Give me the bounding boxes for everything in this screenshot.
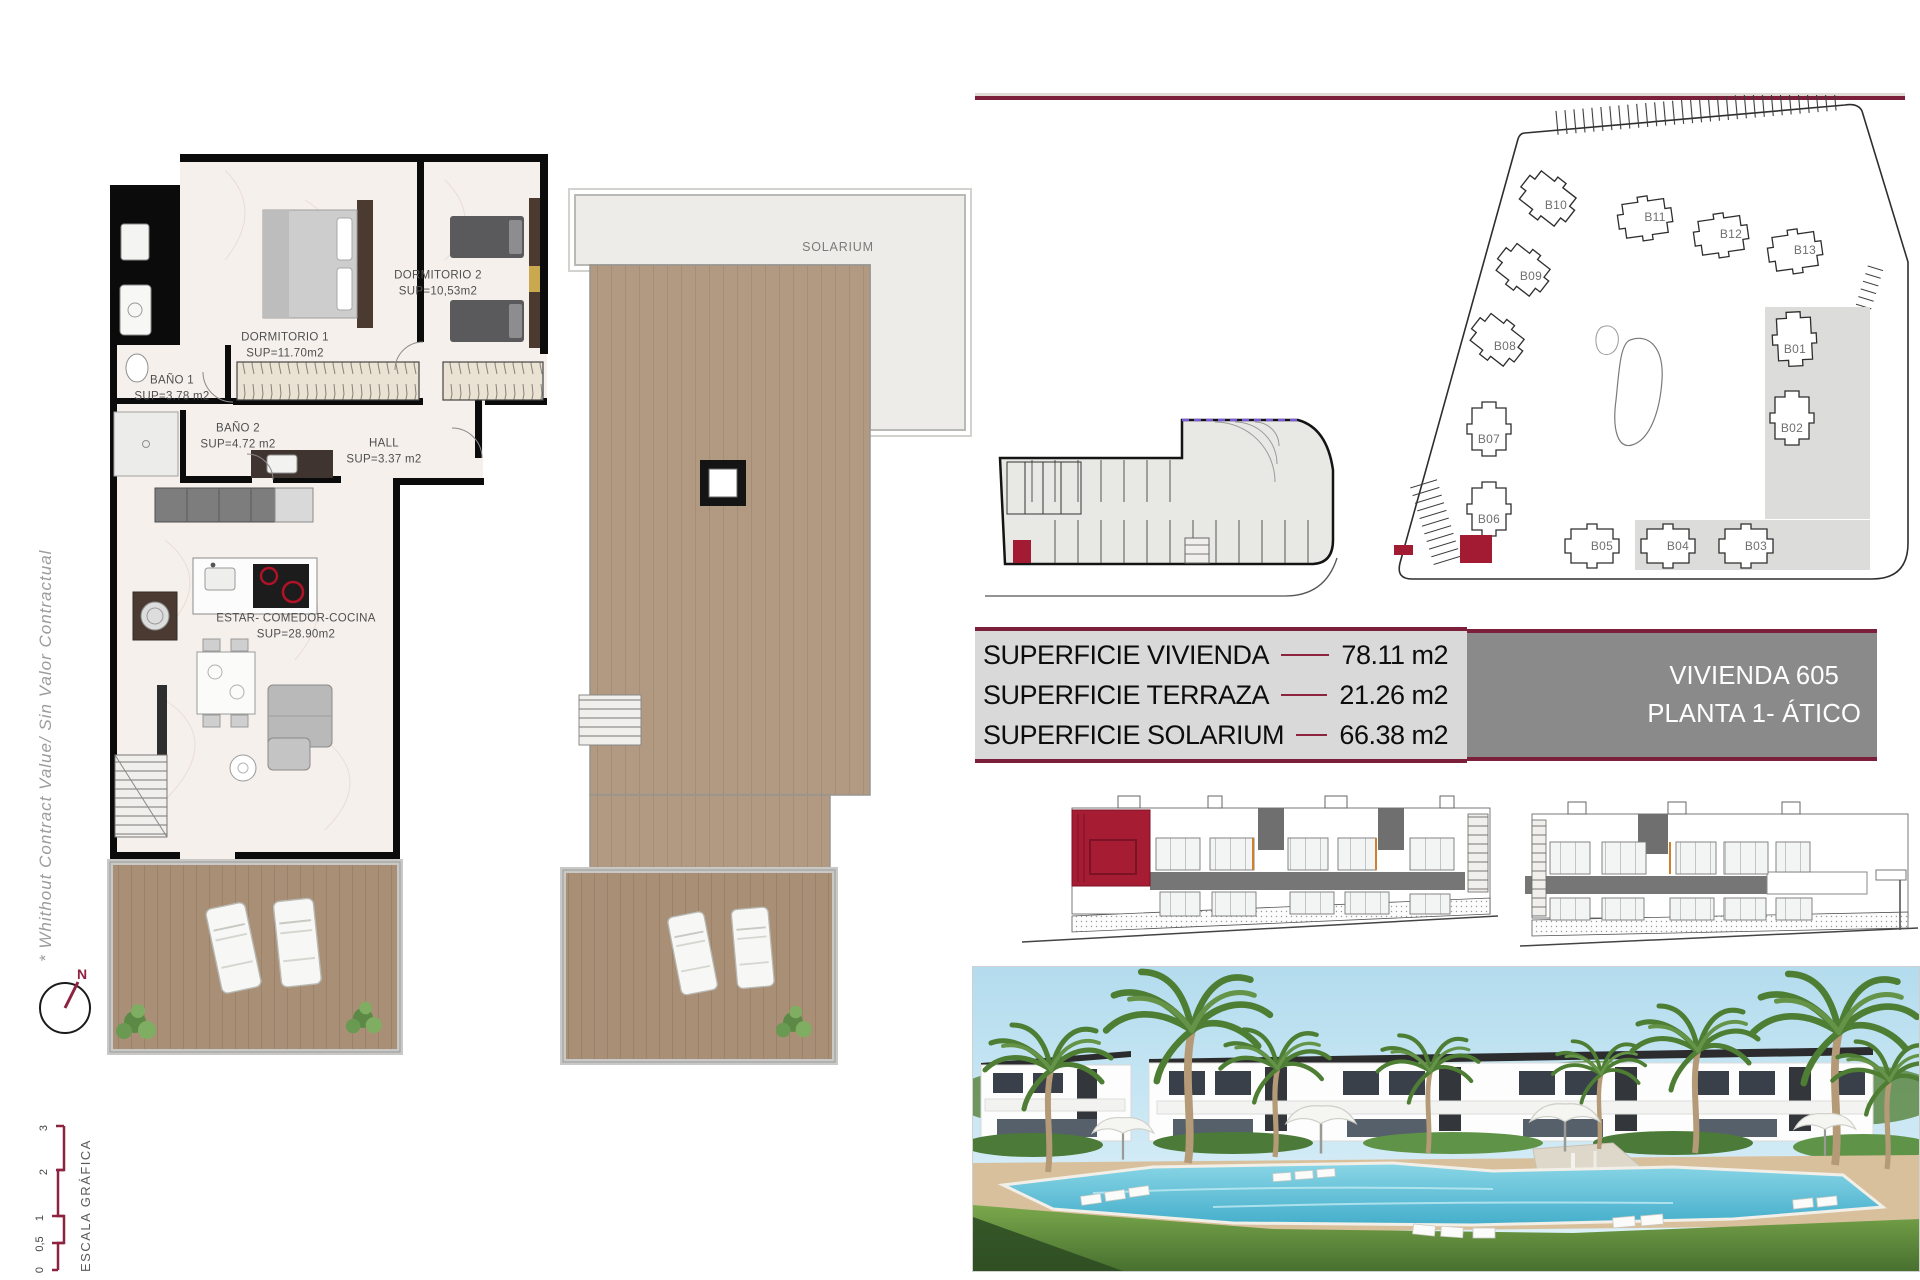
scale-title: ESCALA GRÁFICA	[78, 1139, 93, 1272]
disclaimer-note: * Whithout Contract Value/ Sin Valor Con…	[36, 550, 56, 962]
unit-floor: PLANTA 1- ÁTICO	[1647, 695, 1861, 733]
row-value: 66.38 m2	[1339, 720, 1448, 751]
highlight-unit-b06	[1460, 535, 1492, 563]
table-row: SUPERFICIE SOLARIUM 66.38 m2	[975, 720, 1467, 751]
graphic-scale-bar	[50, 1118, 80, 1280]
garage-stairs	[1185, 538, 1209, 563]
render-photo	[972, 966, 1920, 1272]
row-leader-line	[1281, 694, 1327, 697]
site-plan	[1380, 95, 1920, 605]
solarium-terrace	[563, 870, 835, 1062]
north-compass	[35, 965, 105, 1035]
garage-plan	[985, 400, 1365, 610]
unit-identifier-text: VIVIENDA 605 PLANTA 1- ÁTICO	[1647, 657, 1877, 734]
solarium-plan	[555, 150, 975, 1070]
terrace	[110, 862, 400, 1052]
apartment-floor-plan	[105, 140, 555, 1070]
row-label: SUPERFICIE VIVIENDA	[983, 640, 1269, 671]
elevation-left	[1022, 796, 1498, 942]
table-row: SUPERFICIE VIVIENDA 78.11 m2	[975, 640, 1467, 671]
highlight-parking	[1394, 545, 1413, 555]
brochure-page: DORMITORIO 1 SUP=11.70m2 DORMITORIO 2 SU…	[0, 0, 1920, 1280]
scale-tick-0: 0	[34, 1267, 46, 1273]
table-row: SUPERFICIE TERRAZA 21.26 m2	[975, 680, 1467, 711]
row-leader-line	[1296, 734, 1327, 737]
north-needle	[65, 982, 78, 1008]
solarium-stairs	[579, 695, 641, 745]
row-label: SUPERFICIE TERRAZA	[983, 680, 1269, 711]
north-label: N	[77, 966, 87, 982]
scale-tick-05: 0,5	[34, 1236, 46, 1251]
row-label: SUPERFICIE SOLARIUM	[983, 720, 1284, 751]
row-value: 78.11 m2	[1341, 640, 1448, 671]
unit-number: VIVIENDA 605	[1647, 657, 1861, 695]
elevation-right	[1520, 802, 1918, 946]
unit-identifier-box: VIVIENDA 605 PLANTA 1- ÁTICO	[1467, 629, 1877, 761]
render-photo-art	[973, 967, 1919, 1271]
scale-tick-3: 3	[38, 1125, 50, 1131]
balcony-band	[1150, 872, 1465, 890]
garage-storage-highlight	[1013, 540, 1031, 563]
building-elevations	[1020, 780, 1920, 970]
scale-tick-1: 1	[34, 1215, 46, 1221]
stairs	[115, 755, 167, 837]
row-value: 21.26 m2	[1339, 680, 1448, 711]
row-leader-line	[1281, 654, 1329, 657]
scale-tick-2: 2	[38, 1169, 50, 1175]
surface-summary-table: SUPERFICIE VIVIENDA 78.11 m2 SUPERFICIE …	[975, 627, 1467, 763]
